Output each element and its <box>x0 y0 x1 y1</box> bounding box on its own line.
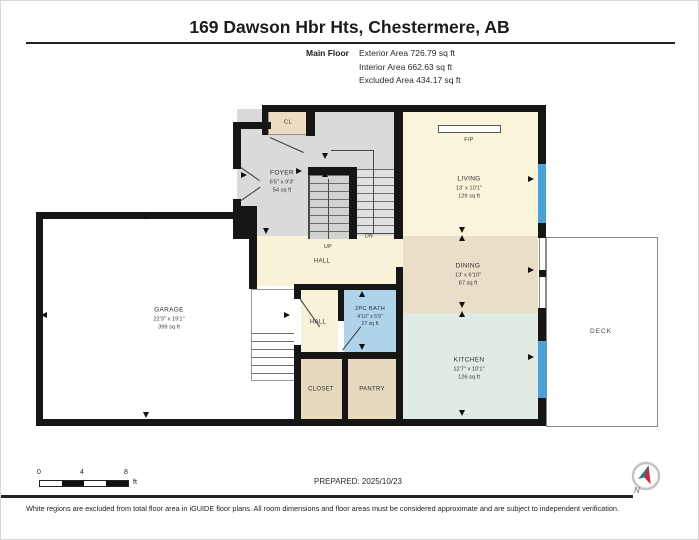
window <box>538 164 546 223</box>
wall <box>233 206 257 239</box>
wall <box>294 352 403 359</box>
marker-arrow <box>241 172 247 178</box>
stairs-up-arrow-line <box>328 179 329 239</box>
marker-arrow <box>263 228 269 234</box>
marker-arrow <box>528 354 534 360</box>
window <box>538 341 546 398</box>
compass-north-label: N <box>634 486 640 495</box>
marker-arrow <box>296 168 302 174</box>
marker-arrow <box>459 227 465 233</box>
stairs-edge-line <box>357 233 394 234</box>
patio-door-jamb <box>539 270 546 277</box>
wall <box>538 398 546 426</box>
disclaimer-text: White regions are excluded from total fl… <box>26 504 619 513</box>
floor-plan: FOYER 6'5" x 9'3" 54 sq ft CL LIVING 13'… <box>1 1 699 540</box>
label-foyer: FOYER 6'5" x 9'3" 54 sq ft <box>270 169 295 196</box>
wall <box>294 284 301 299</box>
label-hall-upper: HALL <box>314 258 330 267</box>
wall <box>538 223 546 238</box>
marker-arrow <box>459 302 465 308</box>
scale-bar <box>39 480 129 487</box>
label-dining: DINING 13' x 6'10" 87 sq ft <box>455 262 481 289</box>
label-hall-lower: HALL <box>310 319 326 328</box>
label-deck: DECK <box>590 327 612 337</box>
stairs-up-flight <box>309 175 349 239</box>
wall <box>538 308 546 341</box>
prepared-date: PREPARED: 2025/10/23 <box>314 477 402 486</box>
label-garage: GARAGE 22'3" x 19'1" 399 sq ft <box>153 306 184 333</box>
wall <box>262 105 268 135</box>
stairs-foyer-line <box>308 169 310 239</box>
wall <box>349 167 357 239</box>
marker-arrow <box>284 312 290 318</box>
marker-arrow <box>459 235 465 241</box>
label-closet: CLOSET <box>308 386 334 395</box>
scale-unit: ft <box>133 479 137 486</box>
label-entry-closet: CL <box>284 119 292 128</box>
wall <box>36 212 43 426</box>
wall <box>249 236 257 289</box>
wall <box>36 419 546 426</box>
marker-arrow <box>41 312 47 318</box>
footer-divider <box>1 495 633 498</box>
wall <box>233 122 241 169</box>
wall <box>338 290 344 321</box>
stairs-landing-arrow <box>322 153 328 159</box>
stairs-path-line-landing <box>331 150 374 151</box>
wall <box>538 105 546 164</box>
garage-stairs-steps <box>251 333 294 381</box>
label-living: LIVING 13' x 10'1" 129 sq ft <box>456 175 482 202</box>
wall <box>294 284 403 290</box>
marker-arrow <box>528 176 534 182</box>
marker-arrow <box>459 410 465 416</box>
fireplace <box>438 125 501 133</box>
marker-arrow <box>143 213 149 219</box>
label-pantry: PANTRY <box>359 386 385 395</box>
wall <box>342 359 348 426</box>
wall <box>306 105 315 136</box>
label-up: UP <box>324 243 332 251</box>
label-dn: DN <box>365 233 373 241</box>
label-fireplace: F/P <box>464 136 473 144</box>
marker-arrow <box>459 311 465 317</box>
stairs-down-flight <box>357 169 394 233</box>
floorplan-page: 169 Dawson Hbr Hts, Chestermere, AB Main… <box>0 0 699 540</box>
scale-tick: 4 <box>80 469 84 476</box>
stairs-path-line-right <box>373 150 374 233</box>
wall <box>396 267 403 426</box>
label-kitchen: KITCHEN 12'7" x 10'1" 126 sq ft <box>453 356 484 383</box>
scale-tick: 0 <box>37 469 41 476</box>
scale-tick: 8 <box>124 469 128 476</box>
marker-arrow <box>143 412 149 418</box>
wall <box>394 105 403 239</box>
marker-arrow <box>359 291 365 297</box>
marker-arrow <box>528 267 534 273</box>
label-bath: 2PC BATH 4'10" x 5'9" 27 sq ft <box>355 305 385 329</box>
marker-arrow <box>359 344 365 350</box>
